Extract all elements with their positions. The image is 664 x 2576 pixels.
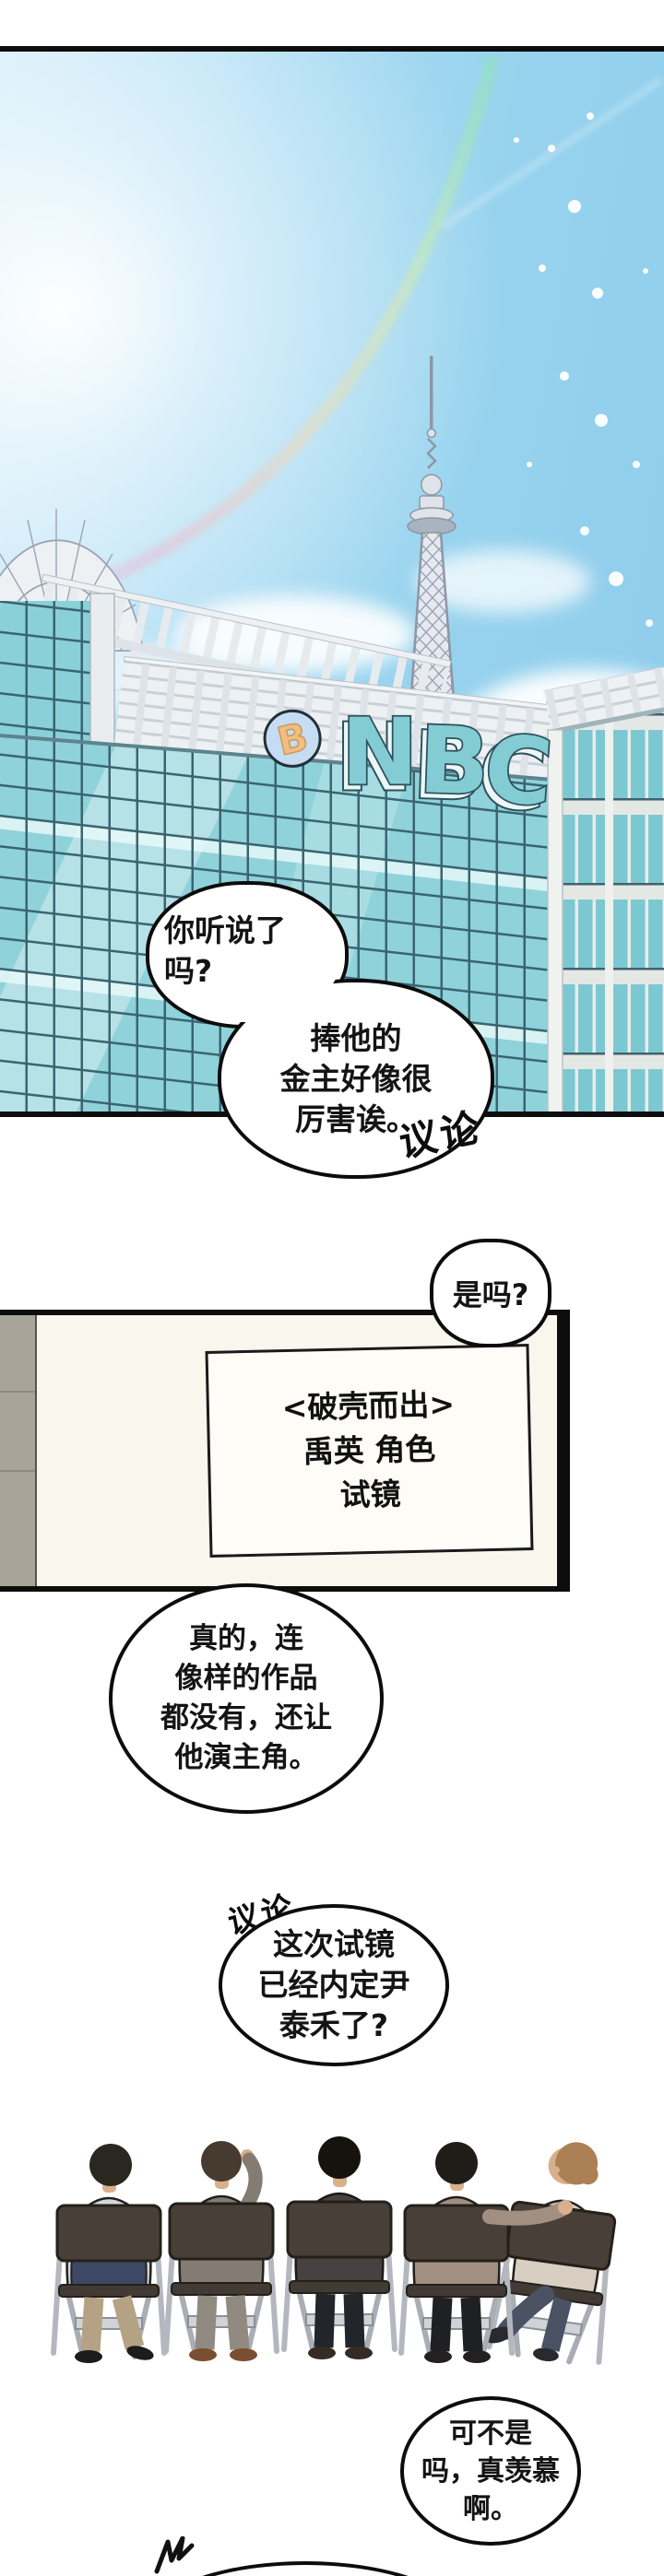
poster-line: 试镜 xyxy=(339,1472,401,1517)
audition-candidate-2 xyxy=(166,2141,277,2361)
speech-bubble-4: 真的，连像样的作品 都没有，还让他演主角。 xyxy=(109,1583,384,1814)
speech-text: 你听说了吗? xyxy=(164,911,339,992)
audition-candidates-row xyxy=(0,2115,664,2373)
audition-candidate-1 xyxy=(53,2144,164,2363)
wall-seam xyxy=(0,1470,35,1472)
poster-line: 禹英 角色 xyxy=(302,1427,436,1474)
speech-bubble-6: 可不是吗，真羡慕啊。 xyxy=(400,2396,581,2546)
scribble-mark-icon xyxy=(153,2536,197,2576)
svg-text:C: C xyxy=(481,714,556,827)
speech-text: 可不是吗，真羡慕啊。 xyxy=(421,2415,560,2528)
paint-splatter-dots xyxy=(514,112,653,627)
svg-text:B: B xyxy=(417,706,491,817)
page-top-rule xyxy=(0,46,664,52)
speech-text: 真的，连像样的作品 都没有，还让他演主角。 xyxy=(160,1619,332,1778)
speech-text: 这次试镜已经内定尹泰禾了? xyxy=(258,1924,410,2046)
speech-bubble-3: 是吗? xyxy=(430,1239,551,1347)
audition-candidate-3 xyxy=(284,2136,395,2359)
speech-bubble-5: 这次试镜已经内定尹泰禾了? xyxy=(219,1904,449,2066)
speech-text: 是吗? xyxy=(453,1272,529,1314)
right-wing xyxy=(543,666,664,1117)
poster-line: <破壳而出> xyxy=(281,1382,455,1430)
audition-poster: <破壳而出> 禹英 角色 试镜 xyxy=(206,1344,534,1558)
wall-corner-strip xyxy=(0,1315,37,1586)
svg-text:N: N xyxy=(341,698,419,806)
panel-audition-room: <破壳而出> 禹英 角色 试镜 xyxy=(0,1310,570,1592)
wall-seam xyxy=(0,1391,35,1393)
comic-page: B N B C N B C <破壳而出> 禹英 角色 试镜 xyxy=(0,0,664,2576)
